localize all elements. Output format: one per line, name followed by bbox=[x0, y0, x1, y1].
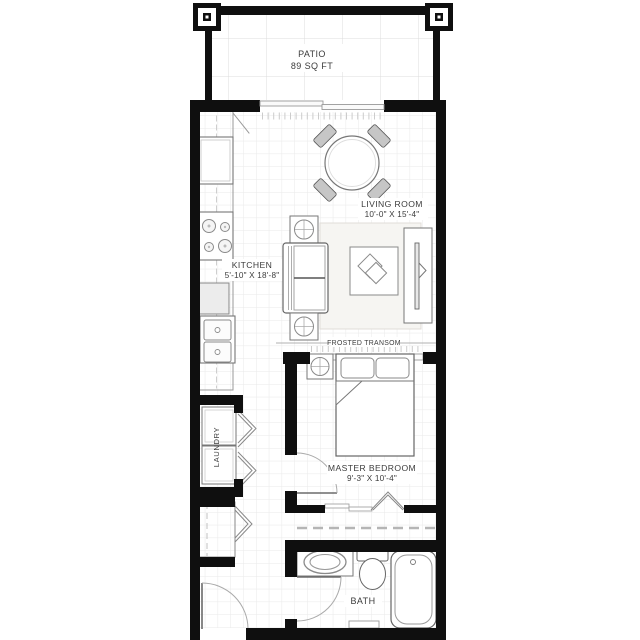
laundry-bottom-wall-return bbox=[234, 479, 243, 497]
kitchen-label: KITCHEN bbox=[232, 260, 273, 270]
laundry-top-wall-return bbox=[234, 395, 243, 413]
column-post-right bbox=[425, 3, 453, 31]
refrigerator bbox=[198, 137, 233, 184]
patio-sliding-door bbox=[260, 101, 384, 110]
unit-top-wall-left bbox=[190, 100, 260, 112]
master-bedroom-label: MASTER BEDROOM bbox=[328, 463, 416, 473]
bath-left-wall-lower bbox=[285, 619, 297, 640]
tv-console bbox=[404, 228, 432, 323]
bath-left-wall-stub bbox=[285, 552, 297, 577]
bedroom-bottom-wall-right bbox=[404, 505, 436, 513]
living-room-dims-label: 10'-0" X 15'-4" bbox=[365, 210, 420, 219]
frosted-transom-label: FROSTED TRANSOM bbox=[327, 340, 401, 347]
patio-label: PATIO bbox=[298, 49, 326, 59]
bedroom-side-table-lamp bbox=[307, 354, 333, 379]
dishwasher bbox=[198, 283, 229, 314]
bedroom-left-wall bbox=[285, 352, 297, 455]
closet-bath-wall bbox=[285, 540, 436, 552]
patio-top-wall bbox=[216, 6, 430, 15]
kitchen-sink bbox=[200, 316, 235, 363]
tub-drain bbox=[411, 560, 416, 565]
pillow bbox=[341, 358, 374, 378]
transom-wall-right bbox=[423, 352, 446, 364]
sofa bbox=[283, 243, 328, 313]
bedroom-bottom-wall-left bbox=[285, 505, 325, 513]
living-room-label: LIVING ROOM bbox=[361, 199, 423, 209]
unit-right-wall bbox=[436, 100, 446, 640]
patio-area-label: 89 SQ FT bbox=[291, 61, 333, 71]
entry-closet-top-wall bbox=[190, 497, 235, 507]
kitchen-dims-label: 5'-10" X 18'-8" bbox=[225, 271, 280, 280]
bed bbox=[336, 354, 414, 456]
side-table-lamp-bottom bbox=[290, 313, 318, 340]
column-post-left bbox=[193, 3, 221, 31]
floor-plan: PATIO 89 SQ FT bbox=[0, 0, 640, 640]
pillow bbox=[376, 358, 409, 378]
master-bedroom-dims-label: 9'-3" X 10'-4" bbox=[347, 474, 397, 483]
bath-vanity bbox=[297, 548, 353, 576]
floor-plan-page: PATIO 89 SQ FT bbox=[0, 0, 640, 640]
patio-area: PATIO 89 SQ FT bbox=[193, 3, 453, 101]
coffee-table bbox=[350, 247, 398, 295]
entry-closet-bottom-wall bbox=[190, 557, 235, 567]
bath-label: BATH bbox=[351, 596, 376, 606]
bathtub bbox=[391, 551, 436, 628]
laundry-label: LAUNDRY bbox=[212, 427, 221, 467]
tv-screen bbox=[415, 243, 419, 309]
toilet bbox=[357, 547, 388, 590]
unit-bottom-wall bbox=[246, 628, 446, 640]
side-table-lamp-top bbox=[290, 216, 318, 243]
dining-table bbox=[313, 124, 391, 202]
stove-cooktop bbox=[198, 212, 233, 260]
bath-threshold bbox=[349, 621, 379, 628]
